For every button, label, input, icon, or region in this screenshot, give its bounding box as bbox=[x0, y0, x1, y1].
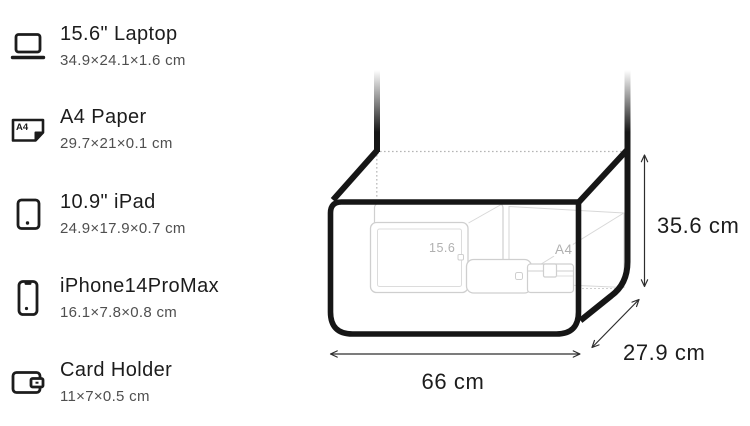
bag-height-label: 35.6 cm bbox=[657, 213, 739, 238]
bag-capacity-infographic: 15.6" Laptop 34.9×24.1×1.6 cm A4 A4 Pape… bbox=[0, 0, 750, 426]
bag-top-left-edge bbox=[333, 151, 377, 201]
ipad-outline bbox=[371, 223, 469, 293]
bag-outline bbox=[331, 68, 628, 334]
a4-tag: A4 bbox=[555, 242, 573, 257]
card-holder-outline bbox=[528, 264, 574, 293]
bag-dimension-diagram: 15.6 A4 35.6 cm 27.9 cm 66 cm bbox=[0, 0, 750, 426]
bag-top-right-edge bbox=[579, 150, 628, 203]
iphone-outline bbox=[467, 260, 532, 294]
bag-contents: 15.6 A4 bbox=[371, 203, 625, 293]
laptop-tag: 15.6 bbox=[429, 241, 455, 255]
bag-depth-label: 27.9 cm bbox=[623, 340, 705, 365]
bag-width-label: 66 cm bbox=[422, 369, 485, 394]
